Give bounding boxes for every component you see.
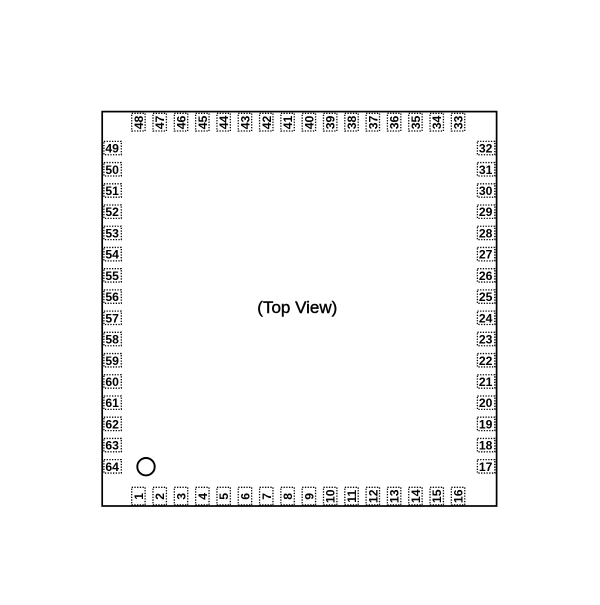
svg-text:61: 61 bbox=[105, 396, 119, 410]
svg-text:44: 44 bbox=[217, 116, 231, 130]
svg-text:29: 29 bbox=[479, 205, 493, 219]
svg-text:60: 60 bbox=[105, 375, 119, 389]
svg-text:55: 55 bbox=[105, 269, 119, 283]
svg-text:19: 19 bbox=[479, 417, 493, 431]
svg-text:43: 43 bbox=[238, 116, 252, 130]
svg-text:8: 8 bbox=[281, 493, 295, 500]
svg-text:62: 62 bbox=[105, 417, 119, 431]
svg-text:50: 50 bbox=[105, 163, 119, 177]
svg-text:46: 46 bbox=[175, 116, 189, 130]
svg-text:56: 56 bbox=[105, 290, 119, 304]
svg-text:4: 4 bbox=[196, 493, 210, 500]
svg-text:12: 12 bbox=[366, 489, 380, 503]
svg-text:41: 41 bbox=[281, 116, 295, 130]
svg-text:17: 17 bbox=[479, 460, 493, 474]
svg-text:33: 33 bbox=[452, 116, 466, 130]
svg-text:54: 54 bbox=[105, 248, 119, 262]
svg-text:40: 40 bbox=[302, 116, 316, 130]
svg-text:11: 11 bbox=[345, 490, 359, 503]
svg-text:35: 35 bbox=[409, 116, 423, 130]
svg-text:15: 15 bbox=[430, 489, 444, 503]
svg-text:10: 10 bbox=[324, 489, 338, 503]
svg-text:49: 49 bbox=[105, 142, 119, 156]
svg-text:59: 59 bbox=[105, 354, 119, 368]
svg-text:25: 25 bbox=[479, 290, 493, 304]
svg-text:63: 63 bbox=[105, 439, 119, 453]
svg-text:28: 28 bbox=[479, 226, 493, 240]
svg-text:6: 6 bbox=[238, 493, 252, 500]
svg-text:31: 31 bbox=[479, 163, 493, 177]
svg-text:20: 20 bbox=[479, 396, 493, 410]
svg-text:27: 27 bbox=[479, 248, 493, 262]
svg-text:18: 18 bbox=[479, 439, 493, 453]
svg-text:30: 30 bbox=[479, 184, 493, 198]
svg-text:34: 34 bbox=[430, 116, 444, 130]
svg-text:48: 48 bbox=[132, 116, 146, 130]
svg-text:14: 14 bbox=[409, 489, 423, 503]
svg-text:26: 26 bbox=[479, 269, 493, 283]
svg-text:53: 53 bbox=[105, 226, 119, 240]
svg-text:36: 36 bbox=[388, 116, 402, 130]
svg-text:42: 42 bbox=[260, 116, 274, 130]
svg-text:16: 16 bbox=[452, 489, 466, 503]
svg-text:58: 58 bbox=[105, 333, 119, 347]
svg-text:38: 38 bbox=[345, 116, 359, 130]
svg-text:9: 9 bbox=[302, 493, 316, 500]
svg-text:21: 21 bbox=[479, 375, 493, 389]
svg-text:57: 57 bbox=[105, 311, 119, 325]
svg-text:32: 32 bbox=[479, 142, 493, 156]
svg-text:13: 13 bbox=[388, 489, 402, 503]
svg-text:52: 52 bbox=[105, 205, 119, 219]
svg-text:51: 51 bbox=[105, 184, 119, 198]
svg-text:3: 3 bbox=[175, 493, 189, 500]
svg-text:64: 64 bbox=[105, 460, 119, 474]
svg-text:5: 5 bbox=[217, 493, 231, 500]
svg-text:39: 39 bbox=[324, 116, 338, 130]
svg-text:24: 24 bbox=[479, 311, 493, 325]
svg-text:2: 2 bbox=[153, 493, 167, 500]
svg-text:45: 45 bbox=[196, 116, 210, 130]
svg-text:23: 23 bbox=[479, 333, 493, 347]
svg-text:37: 37 bbox=[366, 116, 380, 130]
svg-text:1: 1 bbox=[132, 493, 146, 500]
svg-text:(Top View): (Top View) bbox=[257, 298, 337, 317]
svg-text:22: 22 bbox=[479, 354, 493, 368]
svg-text:7: 7 bbox=[260, 493, 274, 500]
svg-text:47: 47 bbox=[153, 116, 167, 130]
